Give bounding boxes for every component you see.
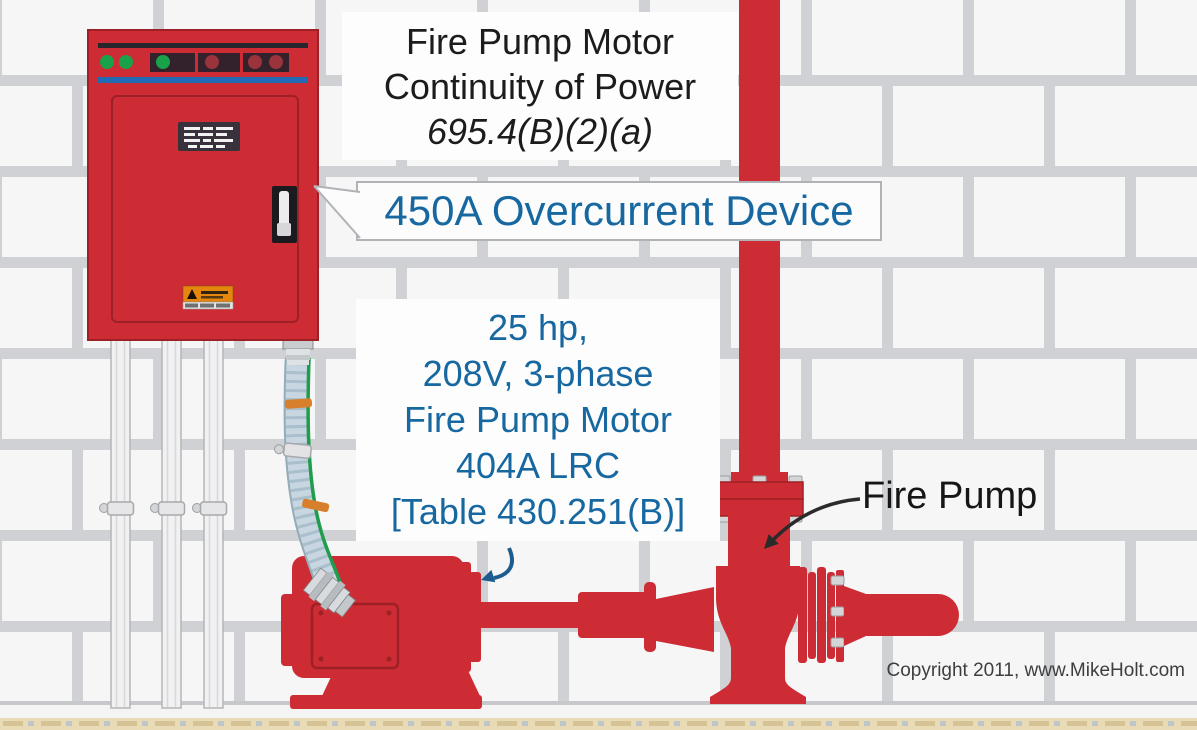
callout-pointer — [310, 183, 360, 239]
title-line-3-code-reference: 695.4(B)(2)(a) — [427, 109, 653, 154]
copyright-text: Copyright 2011, www.MikeHolt.com — [845, 660, 1185, 682]
panel-top-bar — [98, 43, 308, 48]
spec-line-hp: 25 hp, — [488, 305, 588, 351]
callout-label: 450A Overcurrent Device — [384, 187, 853, 235]
title-block: Fire Pump Motor Continuity of Power 695.… — [342, 12, 738, 160]
pump-coupling-rings — [798, 567, 844, 663]
warning-label — [183, 286, 233, 309]
fire-pump-diagram: Fire Pump Motor Continuity of Power 695.… — [0, 0, 1197, 730]
electrical-conduits — [100, 340, 227, 708]
orange-band — [285, 398, 313, 409]
controller-display — [178, 122, 240, 151]
spec-line-table-reference: [Table 430.251(B)] — [391, 489, 685, 535]
controller-handle — [272, 186, 297, 243]
fire-pump-label: Fire Pump — [862, 474, 1037, 518]
panel-blue-stripe — [98, 77, 308, 83]
motor-junction-box — [312, 604, 398, 668]
spec-line-lrc: 404A LRC — [456, 443, 620, 489]
spec-line-voltage: 208V, 3-phase — [423, 351, 654, 397]
fire-pump-controller — [88, 30, 318, 340]
motor-spec-block: 25 hp, 208V, 3-phase Fire Pump Motor 404… — [356, 299, 720, 541]
overcurrent-device-callout: 450A Overcurrent Device — [356, 181, 882, 241]
title-line-1: Fire Pump Motor — [406, 19, 674, 64]
conduit-connector-top — [283, 340, 313, 365]
title-line-2: Continuity of Power — [384, 64, 696, 109]
spec-line-motor: Fire Pump Motor — [404, 397, 672, 443]
